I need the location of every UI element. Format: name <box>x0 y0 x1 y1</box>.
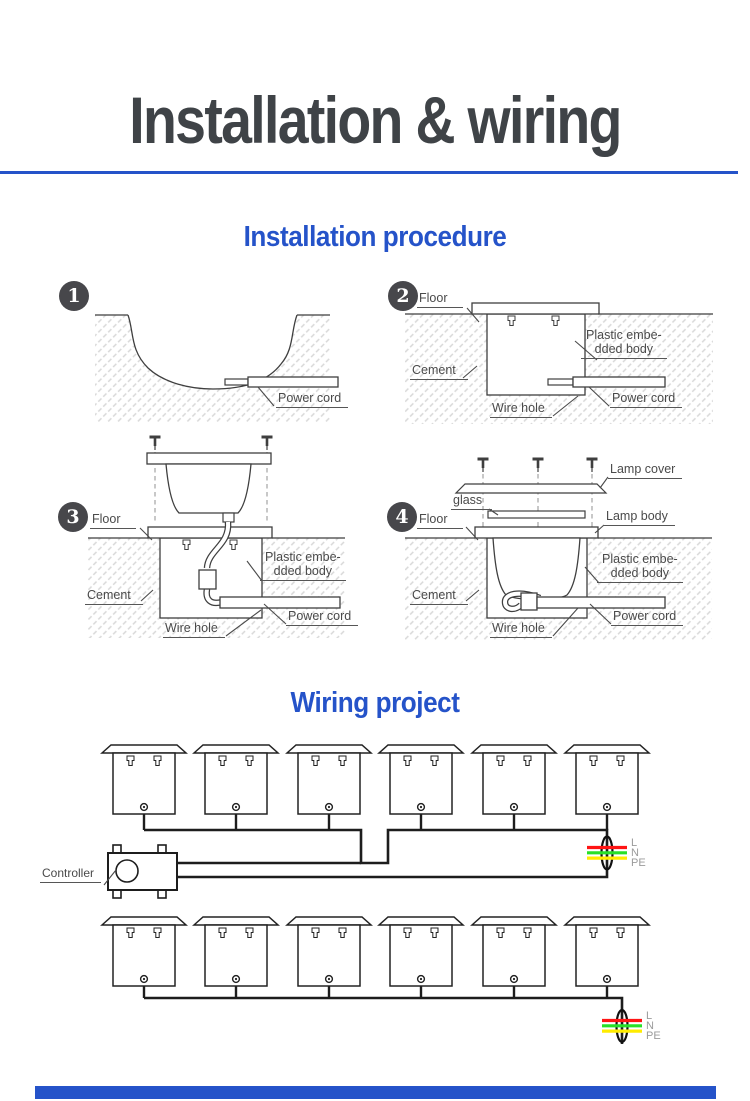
section-wiring-project: Wiring project <box>38 687 713 720</box>
footer-accent-bar <box>35 1086 716 1099</box>
step3-wire-hole-label: Wire hole <box>163 621 225 638</box>
title-underline-rule <box>0 171 738 174</box>
step1-power-cord-label: Power cord <box>276 391 348 408</box>
step2-floor-label: Floor <box>417 291 463 308</box>
section-installation-procedure: Installation procedure <box>38 221 713 254</box>
step3-plastic-body-label: Plastic embe-dded body <box>260 551 346 581</box>
controller-label: Controller <box>40 866 101 883</box>
wiring-diagram <box>0 735 750 1065</box>
step3-diagram <box>88 437 345 638</box>
step3-floor-label: Floor <box>90 512 136 529</box>
step4-wire-hole-label: Wire hole <box>490 621 552 638</box>
wiring-row1 <box>102 745 649 898</box>
step4-plastic-body-label: Plastic embe-dded body <box>597 553 683 583</box>
step4-cement-label: Cement <box>410 588 468 605</box>
step2-power-cord-label: Power cord <box>610 391 682 408</box>
step3-power-cord-label: Power cord <box>286 609 358 626</box>
wire-label-PE-row1: PE <box>631 858 646 868</box>
step2-cement-label: Cement <box>410 363 468 380</box>
step2-wire-hole-label: Wire hole <box>490 401 552 418</box>
step2-plastic-body-label: Plastic embe-dded body <box>581 329 667 359</box>
controller-symbol <box>108 845 177 898</box>
page-title: Installation & wiring <box>60 82 690 158</box>
wiring-row2 <box>102 917 649 1044</box>
step4-lamp-cover-label: Lamp cover <box>608 462 682 479</box>
step3-cement-label: Cement <box>85 588 143 605</box>
wire-label-PE-row2: PE <box>646 1031 661 1041</box>
step4-power-cord-label: Power cord <box>611 609 683 626</box>
manual-page: Installation & wiring Installation proce… <box>0 0 750 1101</box>
step4-glass-label: glass <box>451 493 492 510</box>
step4-lamp-body-label: Lamp body <box>604 509 675 526</box>
step4-floor-label: Floor <box>417 512 463 529</box>
